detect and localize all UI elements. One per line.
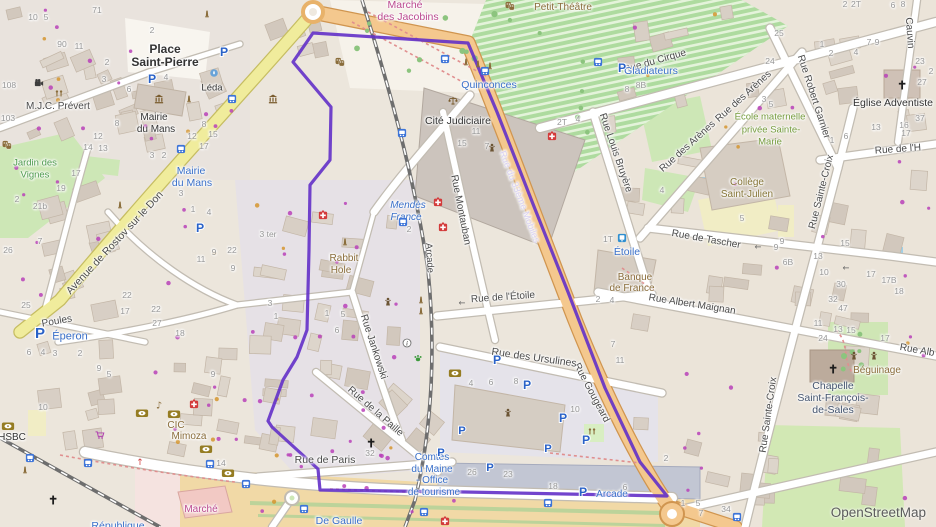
- house-number: 11: [197, 255, 206, 264]
- house-number: 6: [844, 132, 849, 141]
- house-number: 90: [57, 40, 66, 49]
- house-number: 15: [208, 130, 217, 139]
- house-number: 14: [83, 143, 92, 152]
- poi-label: Marché: [184, 505, 217, 515]
- museum-icon: [268, 94, 279, 105]
- house-number: 17: [901, 129, 910, 138]
- house-number: 15: [457, 139, 466, 148]
- house-number: 13: [871, 123, 880, 132]
- street-name-label: Rue Alb: [899, 343, 935, 359]
- medical-icon: [189, 399, 200, 410]
- place-label: Saint-François-: [797, 393, 868, 404]
- house-number: 12: [187, 132, 196, 141]
- house-number: 10: [570, 405, 579, 414]
- poi-label: CIC: [167, 421, 184, 431]
- house-number: 4: [469, 379, 474, 388]
- svg-text:P: P: [544, 443, 552, 454]
- house-number: 15: [846, 326, 855, 335]
- house-number: 71: [92, 6, 101, 15]
- house-number: 2: [78, 349, 83, 358]
- house-number: 5: [740, 214, 745, 223]
- house-number: 8B: [636, 81, 646, 90]
- parking-icon: P: [218, 46, 231, 59]
- transit-stop-label: Gladiateurs: [624, 66, 678, 77]
- svg-text:P: P: [437, 447, 445, 458]
- poi-label: des Jacobins: [377, 12, 438, 23]
- tram-icon: [617, 233, 628, 244]
- poi-label: Mimoza: [171, 432, 206, 442]
- poi-label: Béguinage: [853, 366, 901, 376]
- house-number: 12: [93, 132, 102, 141]
- street-name-label: Rue Montauban: [448, 174, 471, 246]
- monument-icon: [21, 466, 30, 475]
- masks-icon: [335, 57, 346, 68]
- svg-text:←: ←: [755, 242, 762, 252]
- house-number: 6: [335, 326, 340, 335]
- fountain-icon: [209, 68, 220, 79]
- house-number: 1: [830, 136, 835, 145]
- area-label: Jardin des: [13, 158, 57, 168]
- medical-icon: [440, 516, 451, 527]
- house-number: 18: [894, 287, 903, 296]
- parking-icon: P: [577, 486, 590, 499]
- svg-text:P: P: [148, 73, 156, 86]
- house-number: 21b: [33, 202, 47, 211]
- bus-icon: [397, 128, 408, 139]
- house-number: 17: [120, 307, 129, 316]
- svg-text:P: P: [486, 462, 494, 473]
- house-number: 1: [191, 205, 196, 214]
- parking-icon: P: [491, 354, 504, 367]
- house-number: 4: [164, 73, 169, 82]
- street-name-label: Rue du 33ème Mobiles: [497, 150, 541, 245]
- area-label: Marie: [758, 137, 782, 147]
- church-icon: [828, 364, 839, 375]
- bus-icon: [299, 504, 310, 515]
- house-number: 9: [875, 38, 880, 47]
- house-number: 17: [880, 334, 889, 343]
- svg-text:↑: ↑: [136, 458, 143, 467]
- transit-stop-label: Quinconces: [461, 80, 516, 91]
- house-number: 103: [1, 114, 15, 123]
- bus-icon: [176, 144, 187, 155]
- house-number: 2: [150, 26, 155, 35]
- house-number: 25: [774, 29, 783, 38]
- house-number: 4: [854, 48, 859, 57]
- svg-text:P: P: [523, 379, 531, 392]
- poi-label: Banque: [618, 273, 652, 283]
- church-icon: [48, 495, 59, 506]
- house-number: 9: [780, 237, 785, 246]
- bank-icon: [1, 421, 15, 432]
- monument-icon: [116, 201, 125, 210]
- transit-stop-label: République: [91, 521, 144, 527]
- house-number: 2: [162, 151, 167, 160]
- bus-icon: [419, 507, 430, 518]
- playground-icon: [587, 427, 598, 438]
- statue-icon: [503, 408, 514, 419]
- svg-text:P: P: [579, 486, 587, 499]
- house-number: 27: [917, 78, 926, 87]
- transit-stop-label: Mairie: [177, 166, 206, 177]
- monument-icon: [462, 58, 471, 67]
- house-number: 2: [105, 58, 110, 67]
- house-number: 3: [179, 189, 184, 198]
- monument-icon: [417, 296, 426, 305]
- monument-icon: [474, 60, 483, 69]
- house-number: 9: [774, 243, 779, 252]
- house-number: 13: [98, 144, 107, 153]
- parking-icon: P: [542, 442, 554, 454]
- house-number: 2: [929, 67, 934, 76]
- house-number: 23: [915, 57, 924, 66]
- street-name-label: Rue des Arènes: [658, 119, 718, 174]
- house-number: 8: [202, 120, 207, 129]
- street-name-label: Rue Louis Bruyère: [597, 112, 633, 194]
- house-number: 22: [122, 291, 131, 300]
- arrow-left-icon: ←: [753, 242, 764, 253]
- parking-icon: P: [32, 325, 48, 341]
- svg-text:P: P: [196, 222, 204, 235]
- monument-icon: [341, 238, 350, 247]
- house-number: 9: [97, 364, 102, 373]
- street-name-label: Rue de la Paille: [345, 385, 404, 439]
- street-name-label: Arcade: [423, 243, 435, 274]
- bank-icon: [448, 368, 462, 379]
- masks-icon: [2, 140, 13, 151]
- place-label: Cité Judiciaire: [425, 116, 491, 127]
- place-label: de-Sales: [812, 405, 853, 416]
- house-number: 9: [212, 248, 217, 257]
- street-name-label: Rue Albert Maignan: [648, 293, 736, 317]
- monument-icon: [185, 95, 194, 104]
- house-number: 9: [211, 370, 216, 379]
- bus-icon: [25, 453, 36, 464]
- place-label: Léda: [201, 83, 222, 93]
- house-number: 3: [762, 95, 767, 104]
- cart-icon: [95, 430, 106, 441]
- bank-icon: [167, 409, 181, 420]
- place-label: Église Adventiste: [853, 98, 933, 109]
- house-number: 7: [867, 38, 872, 47]
- svg-text:P: P: [493, 354, 501, 367]
- bus-icon: [593, 57, 604, 68]
- transit-stop-label: De Gaulle: [316, 516, 363, 527]
- house-number: 8: [115, 119, 120, 128]
- house-number: 2: [664, 454, 669, 463]
- house-number: 1: [274, 312, 279, 321]
- info-icon: i: [402, 338, 413, 349]
- house-number: 108: [2, 81, 16, 90]
- monument-icon: [203, 10, 212, 19]
- house-number: 3: [102, 75, 107, 84]
- street-name-label: Rue Sainte-Croix: [808, 154, 836, 230]
- house-number: 2: [15, 195, 20, 204]
- parking-icon: P: [557, 412, 570, 425]
- house-number: 11: [472, 127, 481, 136]
- transit-stop-label: du Maine: [411, 465, 452, 475]
- svg-text:♪: ♪: [156, 400, 162, 410]
- house-number: 2: [843, 0, 848, 8]
- medical-icon: [547, 131, 558, 142]
- house-number: 8: [901, 0, 906, 8]
- house-number: 22: [227, 246, 236, 255]
- house-number: 3 ter: [259, 230, 276, 239]
- parking-icon: P: [194, 222, 207, 235]
- house-number: 7: [611, 340, 616, 349]
- svg-text:P: P: [559, 412, 567, 425]
- svg-text:P: P: [458, 425, 466, 436]
- house-number: 5: [107, 370, 112, 379]
- house-number: 27: [152, 319, 161, 328]
- house-number: 1: [681, 499, 686, 508]
- svg-text:P: P: [35, 325, 45, 341]
- area-label: Collège: [730, 178, 764, 188]
- house-number: 37: [915, 114, 924, 123]
- house-number: 6: [489, 378, 494, 387]
- poi-label: de France: [609, 284, 654, 294]
- svg-text:←: ←: [459, 298, 466, 308]
- music-icon: ♪: [154, 400, 165, 411]
- map-canvas[interactable]: PlaceSaint-PierreMarchédes JacobinsPetit…: [0, 0, 936, 527]
- transit-stop-label: - Office: [416, 476, 448, 486]
- house-number: 24: [765, 57, 774, 66]
- house-number: 32: [828, 295, 837, 304]
- house-number: 1T: [603, 235, 613, 244]
- street-name-label: Cauvin: [903, 17, 915, 49]
- street-name-label: Rue Gougeard: [571, 362, 611, 425]
- house-number: 34: [721, 505, 730, 514]
- place-label: du Mans: [137, 125, 175, 135]
- street-name-label: Rue Sainte-Croix: [759, 377, 780, 454]
- house-number: 47: [838, 304, 847, 313]
- bank-icon: [135, 408, 149, 419]
- house-number: 17B: [881, 276, 896, 285]
- area-label: École maternelle: [735, 112, 806, 122]
- bus-icon: [732, 512, 743, 523]
- bus-icon: [205, 459, 216, 470]
- paw-icon: [413, 353, 424, 364]
- house-number: 4: [41, 348, 46, 357]
- scales-icon: [448, 96, 459, 107]
- museum-icon: [154, 94, 165, 105]
- monument-icon: [486, 62, 495, 71]
- place-label: Chapelle: [812, 381, 853, 392]
- house-number: 4: [207, 208, 212, 217]
- statue-icon: [869, 351, 880, 362]
- house-number: 13: [833, 325, 842, 334]
- bus-icon: [543, 498, 554, 509]
- house-number: 26: [3, 246, 12, 255]
- medical-icon: [438, 222, 449, 233]
- bank-icon: [221, 468, 235, 479]
- poi-label: Hole: [331, 266, 352, 276]
- area-label: privée Sainte-: [742, 125, 801, 135]
- house-number: 22: [151, 305, 160, 314]
- house-number: 6: [623, 483, 628, 492]
- parking-icon: P: [521, 379, 534, 392]
- house-number: 6: [127, 85, 132, 94]
- house-number: 32: [365, 449, 374, 458]
- house-number: 10: [38, 403, 47, 412]
- transit-stop-label: Étoile: [614, 247, 640, 258]
- house-number: 18: [548, 482, 557, 491]
- svg-text:i: i: [406, 340, 408, 347]
- area-label: Saint-Julien: [721, 190, 773, 200]
- house-number: 11: [616, 356, 625, 365]
- street-name-label: Rue de Paris: [295, 455, 356, 466]
- statue-icon: [383, 297, 394, 308]
- house-number: 14: [216, 459, 225, 468]
- arrow-left-icon: ←: [841, 263, 852, 274]
- place-label: HSBC: [0, 433, 26, 443]
- house-number: 1: [325, 309, 330, 318]
- labels-layer: PlaceSaint-PierreMarchédes JacobinsPetit…: [0, 0, 936, 527]
- house-number: 2: [596, 295, 601, 304]
- place-label: Saint-Pierre: [131, 56, 198, 68]
- svg-text:P: P: [618, 62, 626, 75]
- poi-label: Rabbit: [330, 254, 359, 264]
- parking-icon: P: [435, 446, 447, 458]
- house-number: 23: [503, 470, 512, 479]
- arrow-left-icon: ←: [457, 298, 468, 309]
- house-number: 3: [268, 299, 273, 308]
- house-number: 17: [866, 270, 875, 279]
- street-name-label: Rue des Ursulines: [491, 347, 577, 369]
- statue-icon: [849, 351, 860, 362]
- church-icon: [897, 80, 908, 91]
- house-number: 5: [696, 499, 701, 508]
- cinema-icon: [34, 78, 45, 89]
- house-number: 18: [175, 329, 184, 338]
- bus-icon: [227, 94, 238, 105]
- medical-icon: [318, 210, 329, 221]
- parking-icon: P: [616, 62, 629, 75]
- bus-icon: [398, 217, 409, 228]
- church-icon: [366, 438, 377, 449]
- bus-icon: [83, 458, 94, 469]
- transit-stop-label: Mendès: [390, 201, 426, 211]
- house-number: 24: [818, 334, 827, 343]
- parking-icon: P: [484, 461, 496, 473]
- house-number: 10: [819, 268, 828, 277]
- house-number: 25: [21, 301, 30, 310]
- house-number: 6B: [783, 258, 793, 267]
- house-number: 9: [231, 264, 236, 273]
- transit-stop-label: du Mans: [172, 178, 212, 189]
- house-number: 17: [71, 169, 80, 178]
- place-label: Mairie: [140, 113, 167, 123]
- transit-stop-label: Éperon: [52, 332, 87, 343]
- house-number: 5: [341, 310, 346, 319]
- house-number: 5: [44, 13, 49, 22]
- house-number: 15: [840, 239, 849, 248]
- bank-icon: [199, 444, 213, 455]
- street-name-label: Rue de l'H: [875, 143, 922, 156]
- house-number: 17: [199, 142, 208, 151]
- house-number: 4: [610, 296, 615, 305]
- house-number: 19: [56, 184, 65, 193]
- house-number: 2T: [557, 118, 567, 127]
- bus-icon: [440, 54, 451, 65]
- monument-icon: [417, 307, 426, 316]
- house-number: 7: [699, 509, 704, 518]
- house-number: 2: [829, 49, 834, 58]
- parking-icon: P: [456, 424, 468, 436]
- poi-label: Petit-Théâtre: [534, 3, 592, 13]
- bus-icon: [241, 479, 252, 490]
- osm-attribution-link[interactable]: OpenStreetMap: [831, 505, 926, 520]
- house-number: 4: [576, 115, 581, 124]
- house-number: 6: [27, 348, 32, 357]
- statue-icon: [487, 143, 498, 154]
- transit-stop-label: de tourisme: [408, 488, 460, 498]
- arrow-up-red-icon: ↑: [135, 457, 146, 468]
- house-number: 5: [769, 100, 774, 109]
- street-name-label: Rue de l'Étoile: [471, 291, 536, 305]
- svg-text:P: P: [220, 46, 228, 59]
- house-number: 6: [891, 1, 896, 10]
- house-number: 11: [75, 42, 84, 51]
- house-number: 11: [814, 319, 823, 328]
- house-number: 7: [38, 237, 43, 246]
- svg-text:←: ←: [843, 263, 850, 273]
- place-label: Place: [149, 43, 180, 55]
- house-number: 1: [820, 40, 825, 49]
- playground-icon: [54, 89, 65, 100]
- parking-icon: P: [146, 73, 159, 86]
- house-number: 10: [28, 13, 37, 22]
- house-number: 3: [150, 151, 155, 160]
- house-number: 4: [660, 186, 665, 195]
- poi-label: Marché: [387, 0, 422, 10]
- house-number: 2T: [851, 0, 861, 8]
- house-number: 8: [625, 85, 630, 94]
- street-name-label: M.J.C. Prévert: [26, 102, 90, 112]
- house-number: 13: [813, 252, 822, 261]
- medical-icon: [433, 197, 444, 208]
- street-name-label: Rue Jankowski: [358, 313, 388, 380]
- house-number: 3: [53, 349, 58, 358]
- house-number: 8: [514, 377, 519, 386]
- masks-icon: [505, 1, 516, 12]
- area-label: Vignes: [21, 170, 50, 180]
- house-number: 30: [836, 280, 845, 289]
- street-name-label: Rue de Tascher: [671, 229, 742, 251]
- house-number: 26: [467, 468, 476, 477]
